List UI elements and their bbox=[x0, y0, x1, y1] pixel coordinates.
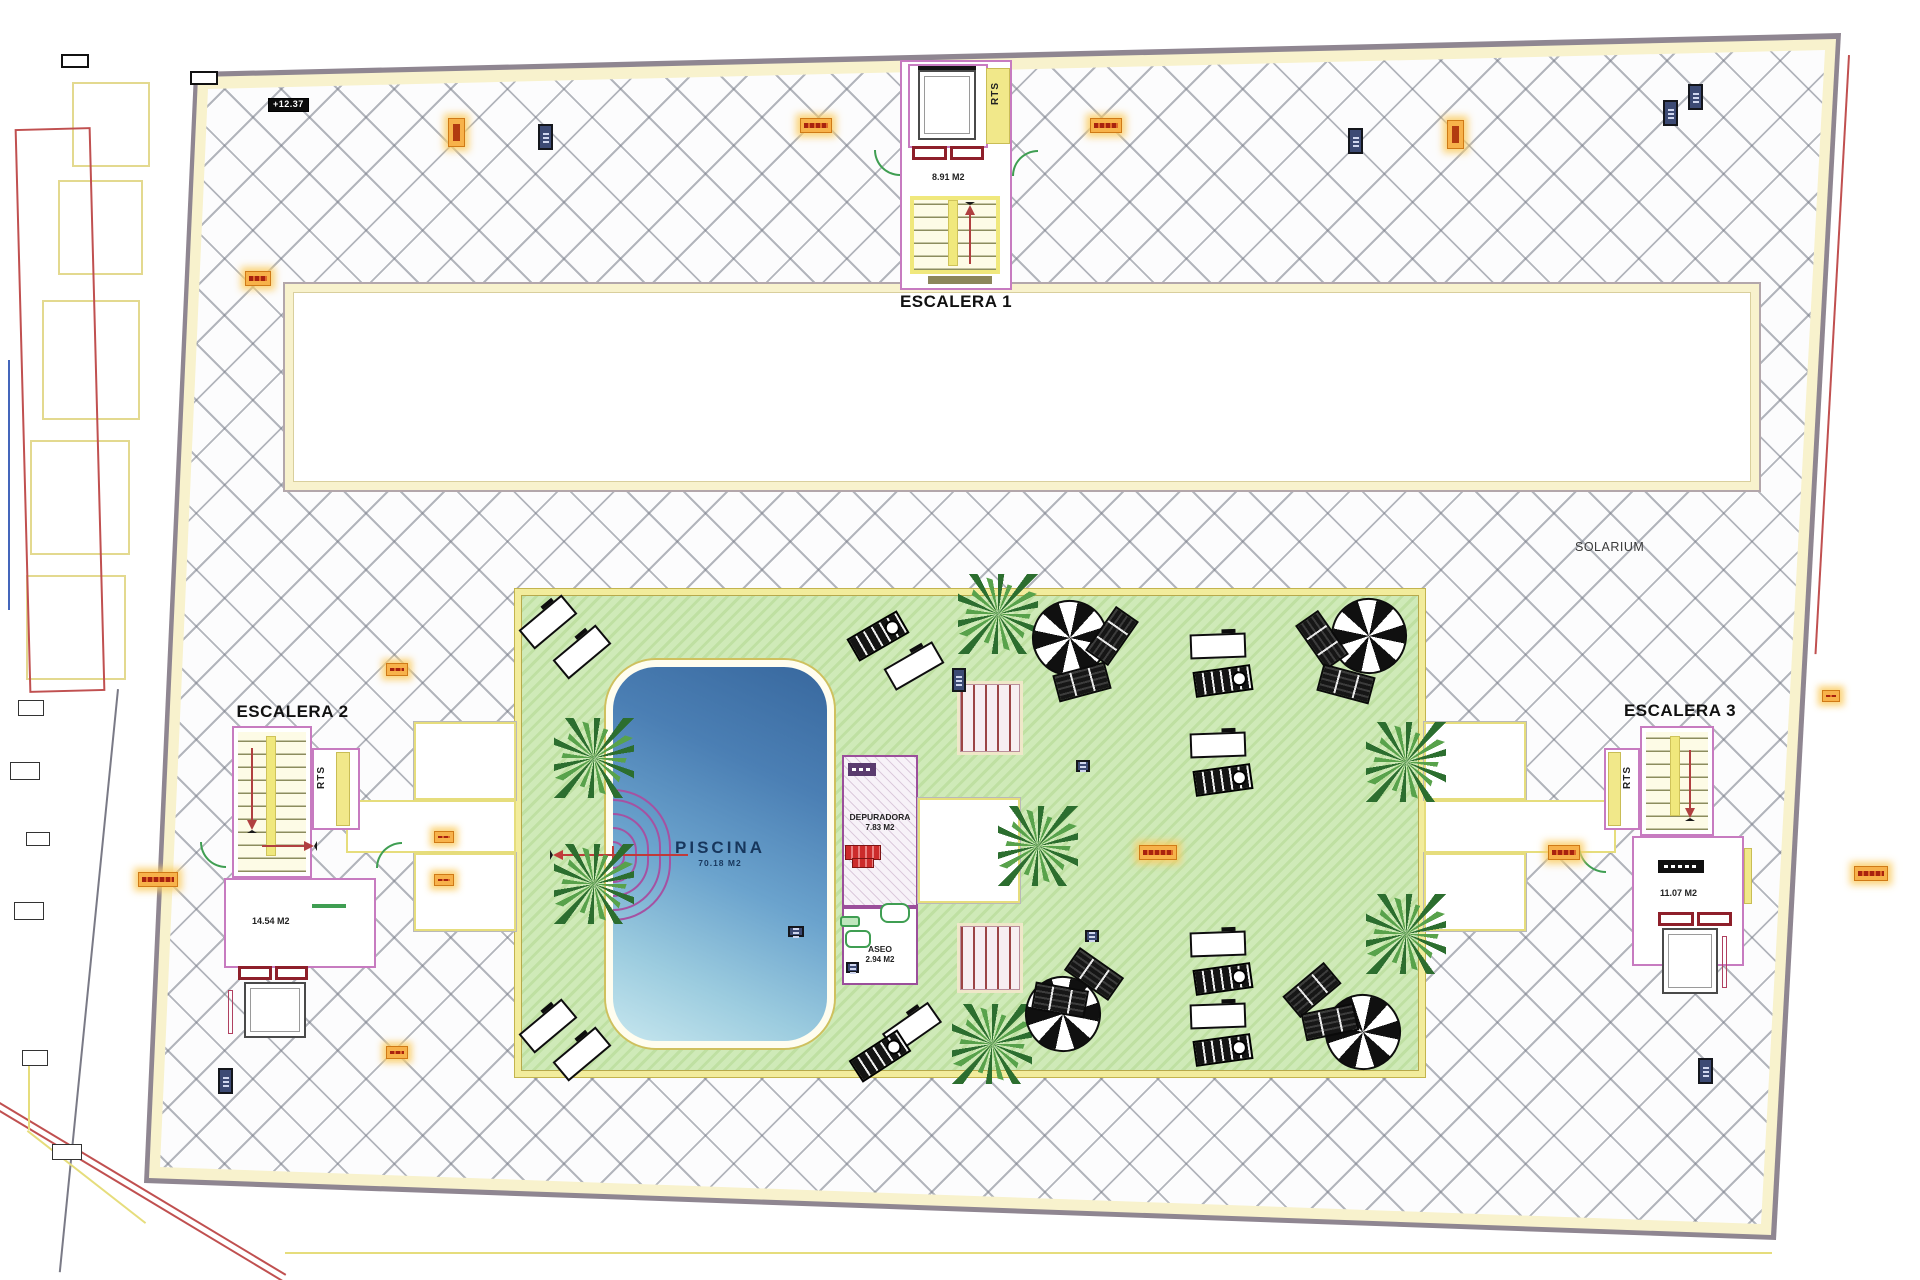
pool-title: PISCINA bbox=[640, 838, 800, 858]
bottom-yellow-line bbox=[285, 1252, 1772, 1254]
stair3-area-label: 11.07 M2 bbox=[1660, 888, 1697, 898]
left-edge-line bbox=[59, 689, 119, 1272]
stair-spine-1 bbox=[948, 200, 958, 266]
stair1-title: ESCALERA 1 bbox=[886, 292, 1026, 312]
vent-marker-navy-icon bbox=[538, 124, 553, 150]
lift-shaft-2 bbox=[244, 982, 306, 1038]
wood-walkway-icon bbox=[960, 684, 1020, 752]
stair-arrow-head bbox=[1685, 808, 1695, 821]
elevation-marker-orange-icon bbox=[1139, 845, 1177, 860]
pool-area-label: 70.18 M2 bbox=[640, 858, 800, 868]
palm-tree-icon bbox=[952, 1004, 1032, 1084]
drain-marker-orange-icon bbox=[434, 831, 454, 843]
palm-tree-icon bbox=[554, 844, 634, 924]
stair2-area-label: 14.54 M2 bbox=[252, 916, 290, 926]
rts-duct-2 bbox=[336, 752, 350, 826]
sun-lounger-white-icon bbox=[1190, 1003, 1247, 1030]
drain-marker-orange-icon bbox=[448, 118, 465, 147]
vent-marker-navy-icon bbox=[1085, 930, 1099, 942]
drain-marker-orange-icon bbox=[1447, 120, 1464, 149]
stair-landing-2 bbox=[224, 878, 376, 968]
vent-marker-navy-icon bbox=[1663, 100, 1678, 126]
stair2-title: ESCALERA 2 bbox=[230, 702, 355, 722]
stair-arrow-icon bbox=[251, 748, 253, 820]
palm-tree-icon bbox=[1366, 894, 1446, 974]
elevation-marker-icon: +12.37 bbox=[268, 98, 309, 112]
corner-yellow-line bbox=[27, 1130, 146, 1224]
pool-label-group: PISCINA 70.18 M2 bbox=[640, 838, 800, 868]
stair-spine-3 bbox=[1670, 736, 1680, 816]
lift-rail-2 bbox=[228, 990, 233, 1034]
stair-arrow-head bbox=[304, 841, 317, 851]
stair1-area-label: 8.91 M2 bbox=[932, 172, 965, 182]
left-margin-rect bbox=[14, 902, 44, 920]
aseo-green-marker bbox=[840, 916, 860, 927]
lift-rail-3 bbox=[1722, 936, 1727, 988]
drain-marker-orange-icon bbox=[1854, 866, 1888, 881]
vent-marker-navy-icon bbox=[1076, 760, 1090, 772]
vent-marker-navy-icon bbox=[952, 668, 966, 692]
lift-doors-icon bbox=[912, 146, 984, 160]
floor-plan-canvas: SOLARIUM PISCINA 70.18 M2 DEPURADORA 7.8… bbox=[0, 0, 1920, 1280]
deck-recess bbox=[414, 853, 516, 931]
left-margin-rect bbox=[22, 1050, 48, 1066]
aseo-title: ASEO bbox=[842, 944, 918, 955]
vent-marker-navy-icon bbox=[1688, 84, 1703, 110]
rts-duct-1 bbox=[986, 68, 1010, 144]
stair-spine-2 bbox=[266, 736, 276, 856]
stair-arrow-head bbox=[965, 202, 975, 215]
room-tag-badge bbox=[848, 763, 876, 776]
wood-walkway-icon bbox=[960, 926, 1020, 990]
depuradora-title: DEPURADORA bbox=[842, 812, 918, 823]
sun-lounger-white-icon bbox=[1190, 633, 1247, 660]
building-void-band bbox=[283, 282, 1761, 492]
palm-tree-icon bbox=[958, 574, 1038, 654]
rts-label-3: RTS bbox=[1622, 766, 1633, 789]
sink-icon bbox=[880, 903, 910, 923]
pool-pump-icon bbox=[852, 858, 874, 868]
deck-recess bbox=[414, 722, 516, 800]
rts-duct-3 bbox=[1608, 752, 1621, 826]
sun-lounger-white-icon bbox=[1190, 732, 1247, 759]
left-terrace-red-outline bbox=[15, 127, 106, 693]
lift-doors-icon bbox=[1658, 912, 1732, 926]
lift-shaft-1 bbox=[918, 70, 976, 140]
palm-tree-icon bbox=[1366, 722, 1446, 802]
solarium-label: SOLARIUM bbox=[1575, 540, 1644, 554]
vent-marker-navy-icon bbox=[788, 926, 804, 937]
left-margin-rect bbox=[26, 832, 50, 846]
rts-label-2: RTS bbox=[316, 766, 327, 789]
corridor-west bbox=[346, 800, 516, 853]
drain-marker-orange-icon bbox=[1090, 118, 1122, 133]
stair-arrow-head bbox=[247, 820, 257, 833]
elevation-marker-dark bbox=[1658, 860, 1704, 873]
left-margin-rect bbox=[18, 700, 44, 716]
lift-lintel-1 bbox=[918, 66, 976, 70]
palm-tree-icon bbox=[554, 718, 634, 798]
vent-marker-navy-icon bbox=[846, 962, 859, 973]
stair-arrow-icon bbox=[969, 212, 971, 264]
palm-tree-icon bbox=[998, 806, 1078, 886]
drain-marker-orange-icon bbox=[386, 663, 408, 676]
drain-marker-orange-icon bbox=[245, 271, 271, 286]
vent-marker-navy-icon bbox=[218, 1068, 233, 1094]
sun-lounger-white-icon bbox=[1190, 931, 1247, 958]
elevation-marker-orange-icon bbox=[138, 872, 178, 887]
drain-marker-orange-icon bbox=[800, 118, 832, 133]
left-blue-line bbox=[8, 360, 10, 610]
stair-sill-1 bbox=[928, 276, 992, 284]
lift-shaft-3 bbox=[1662, 928, 1718, 994]
drain-marker-orange-icon bbox=[1548, 845, 1580, 860]
stair3-title: ESCALERA 3 bbox=[1615, 701, 1745, 721]
stair-arrow-icon bbox=[262, 845, 306, 847]
drain-marker-orange-icon bbox=[434, 874, 454, 886]
depuradora-area: 7.83 M2 bbox=[842, 823, 918, 832]
lift-doors-icon bbox=[238, 966, 308, 980]
depuradora-label-group: DEPURADORA 7.83 M2 bbox=[842, 812, 918, 832]
door-leaf bbox=[1744, 848, 1752, 904]
drain-marker-orange-icon bbox=[1822, 690, 1840, 702]
vent-marker-navy-icon bbox=[1348, 128, 1363, 154]
vent-marker-navy-icon bbox=[1698, 1058, 1713, 1084]
door-threshold bbox=[312, 904, 346, 908]
drain-marker-orange-icon bbox=[386, 1046, 408, 1059]
stair-arrow-icon bbox=[1689, 750, 1691, 808]
boundary-node-rect bbox=[61, 54, 89, 68]
left-margin-rect bbox=[52, 1144, 82, 1160]
rts-label-1: RTS bbox=[990, 82, 1001, 105]
left-margin-rect bbox=[10, 762, 40, 780]
boundary-node-rect bbox=[190, 71, 218, 85]
